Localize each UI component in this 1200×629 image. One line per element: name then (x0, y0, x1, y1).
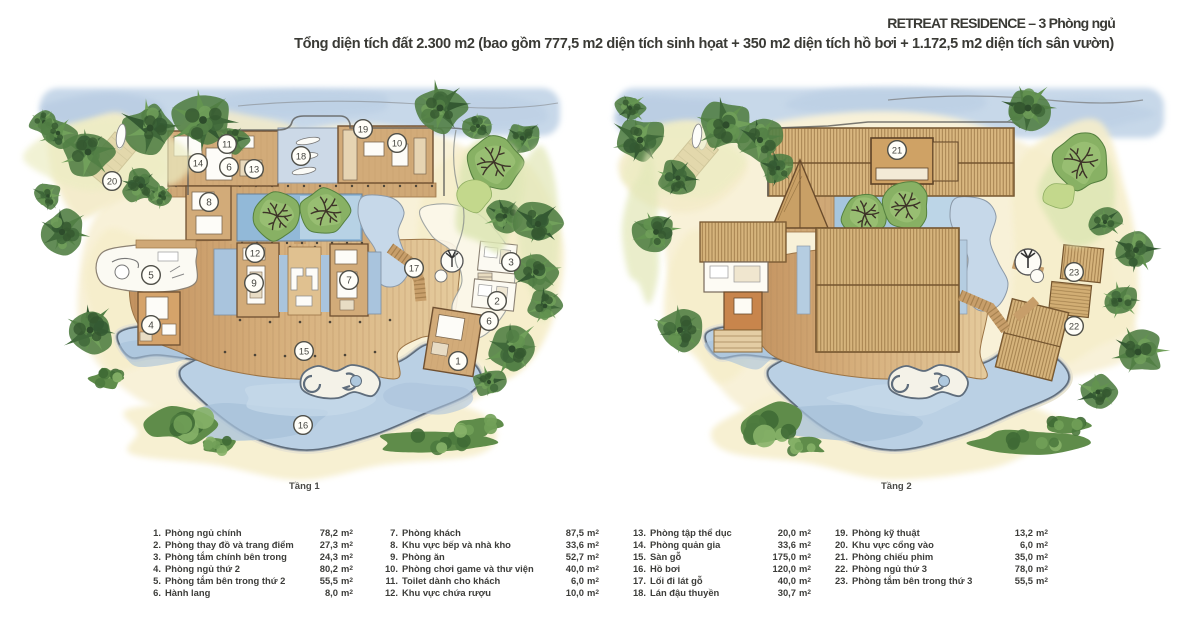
svg-text:21: 21 (892, 145, 902, 155)
svg-text:23: 23 (1069, 267, 1079, 277)
svg-text:6: 6 (226, 162, 232, 173)
svg-text:2: 2 (494, 296, 500, 307)
svg-text:22: 22 (1069, 321, 1079, 331)
svg-text:17: 17 (409, 263, 419, 273)
svg-text:1: 1 (455, 356, 461, 367)
svg-text:13: 13 (249, 164, 259, 174)
svg-text:14: 14 (193, 158, 203, 168)
svg-text:18: 18 (296, 151, 306, 161)
svg-text:7: 7 (346, 275, 352, 286)
svg-text:19: 19 (358, 124, 368, 134)
svg-text:15: 15 (299, 346, 309, 356)
svg-text:4: 4 (148, 320, 154, 331)
svg-text:8: 8 (206, 197, 212, 208)
svg-text:10: 10 (392, 138, 402, 148)
svg-text:20: 20 (107, 176, 117, 186)
svg-text:11: 11 (222, 139, 232, 149)
svg-text:16: 16 (298, 420, 308, 430)
svg-text:9: 9 (251, 278, 257, 289)
svg-text:5: 5 (148, 270, 154, 281)
svg-text:3: 3 (508, 257, 514, 268)
svg-text:12: 12 (250, 248, 260, 258)
svg-text:6: 6 (486, 316, 492, 327)
